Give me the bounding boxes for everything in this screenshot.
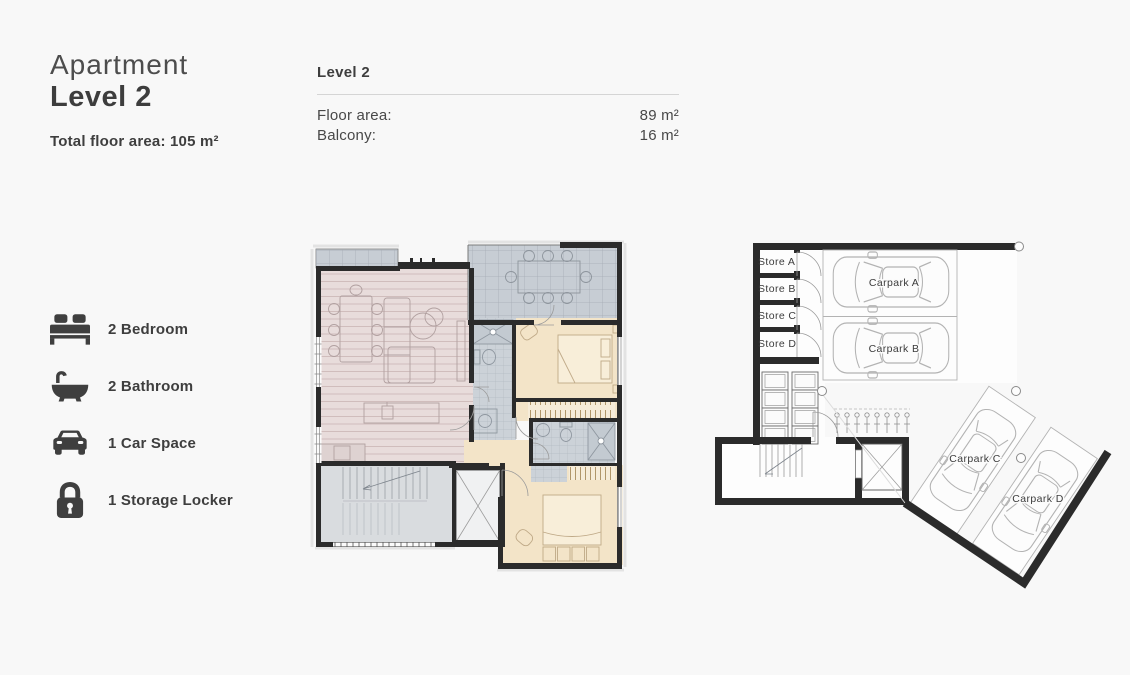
details-heading: Level 2 (317, 64, 679, 95)
page-subtitle: Level 2 (50, 81, 219, 114)
details-row-balcony: Balcony: 16 m² (317, 126, 679, 146)
store-b-label: Store B (758, 283, 796, 295)
balcony-value: 16 m² (640, 126, 679, 146)
carpark-ab: Carpark A Carpark B (823, 250, 957, 380)
bed-icon (50, 310, 90, 348)
lobby-elevator (856, 444, 903, 490)
feature-bathroom: 2 Bathroom (50, 366, 233, 406)
feature-bedroom: 2 Bedroom (50, 309, 233, 349)
floor-area-value: 89 m² (640, 106, 679, 126)
level-details-panel: Level 2 Floor area: 89 m² Balcony: 16 m² (317, 64, 679, 146)
details-row-floor-area: Floor area: 89 m² (317, 106, 679, 126)
bike-racks (834, 409, 910, 433)
carpark-c-label: Carpark C (949, 453, 1000, 465)
floor-plan (303, 237, 638, 579)
store-c-label: Store C (758, 310, 796, 322)
balcony-label: Balcony: (317, 126, 376, 146)
carpark-a-label: Carpark A (869, 277, 919, 289)
store-a-label: Store A (758, 256, 795, 268)
header: Apartment Level 2 Total floor area: 105 … (50, 50, 219, 150)
store-d-label: Store D (758, 338, 796, 350)
feature-storage-locker: 1 Storage Locker (50, 480, 233, 520)
total-floor-area: Total floor area: 105 m² (50, 133, 219, 150)
carpark-plan: Store A Store B Store C Store D Carpark … (710, 237, 1120, 597)
floor-area-label: Floor area: (317, 106, 392, 126)
carpark-d-label: Carpark D (1012, 493, 1063, 505)
lock-icon (50, 480, 90, 520)
feature-bathroom-label: 2 Bathroom (108, 378, 193, 395)
bath-icon (50, 368, 90, 405)
feature-car-space-label: 1 Car Space (108, 435, 196, 452)
page: { "header": { "title_top": "Apartment", … (0, 0, 1130, 675)
feature-car-space: 1 Car Space (50, 423, 233, 463)
details-rows: Floor area: 89 m² Balcony: 16 m² (317, 106, 679, 146)
features-list: 2 Bedroom 2 Bathroom 1 Car Space (50, 309, 233, 520)
carpark-b-label: Carpark B (869, 343, 920, 355)
feature-storage-locker-label: 1 Storage Locker (108, 492, 233, 509)
page-title: Apartment (50, 50, 219, 81)
car-icon (50, 425, 90, 462)
feature-bedroom-label: 2 Bedroom (108, 321, 188, 338)
